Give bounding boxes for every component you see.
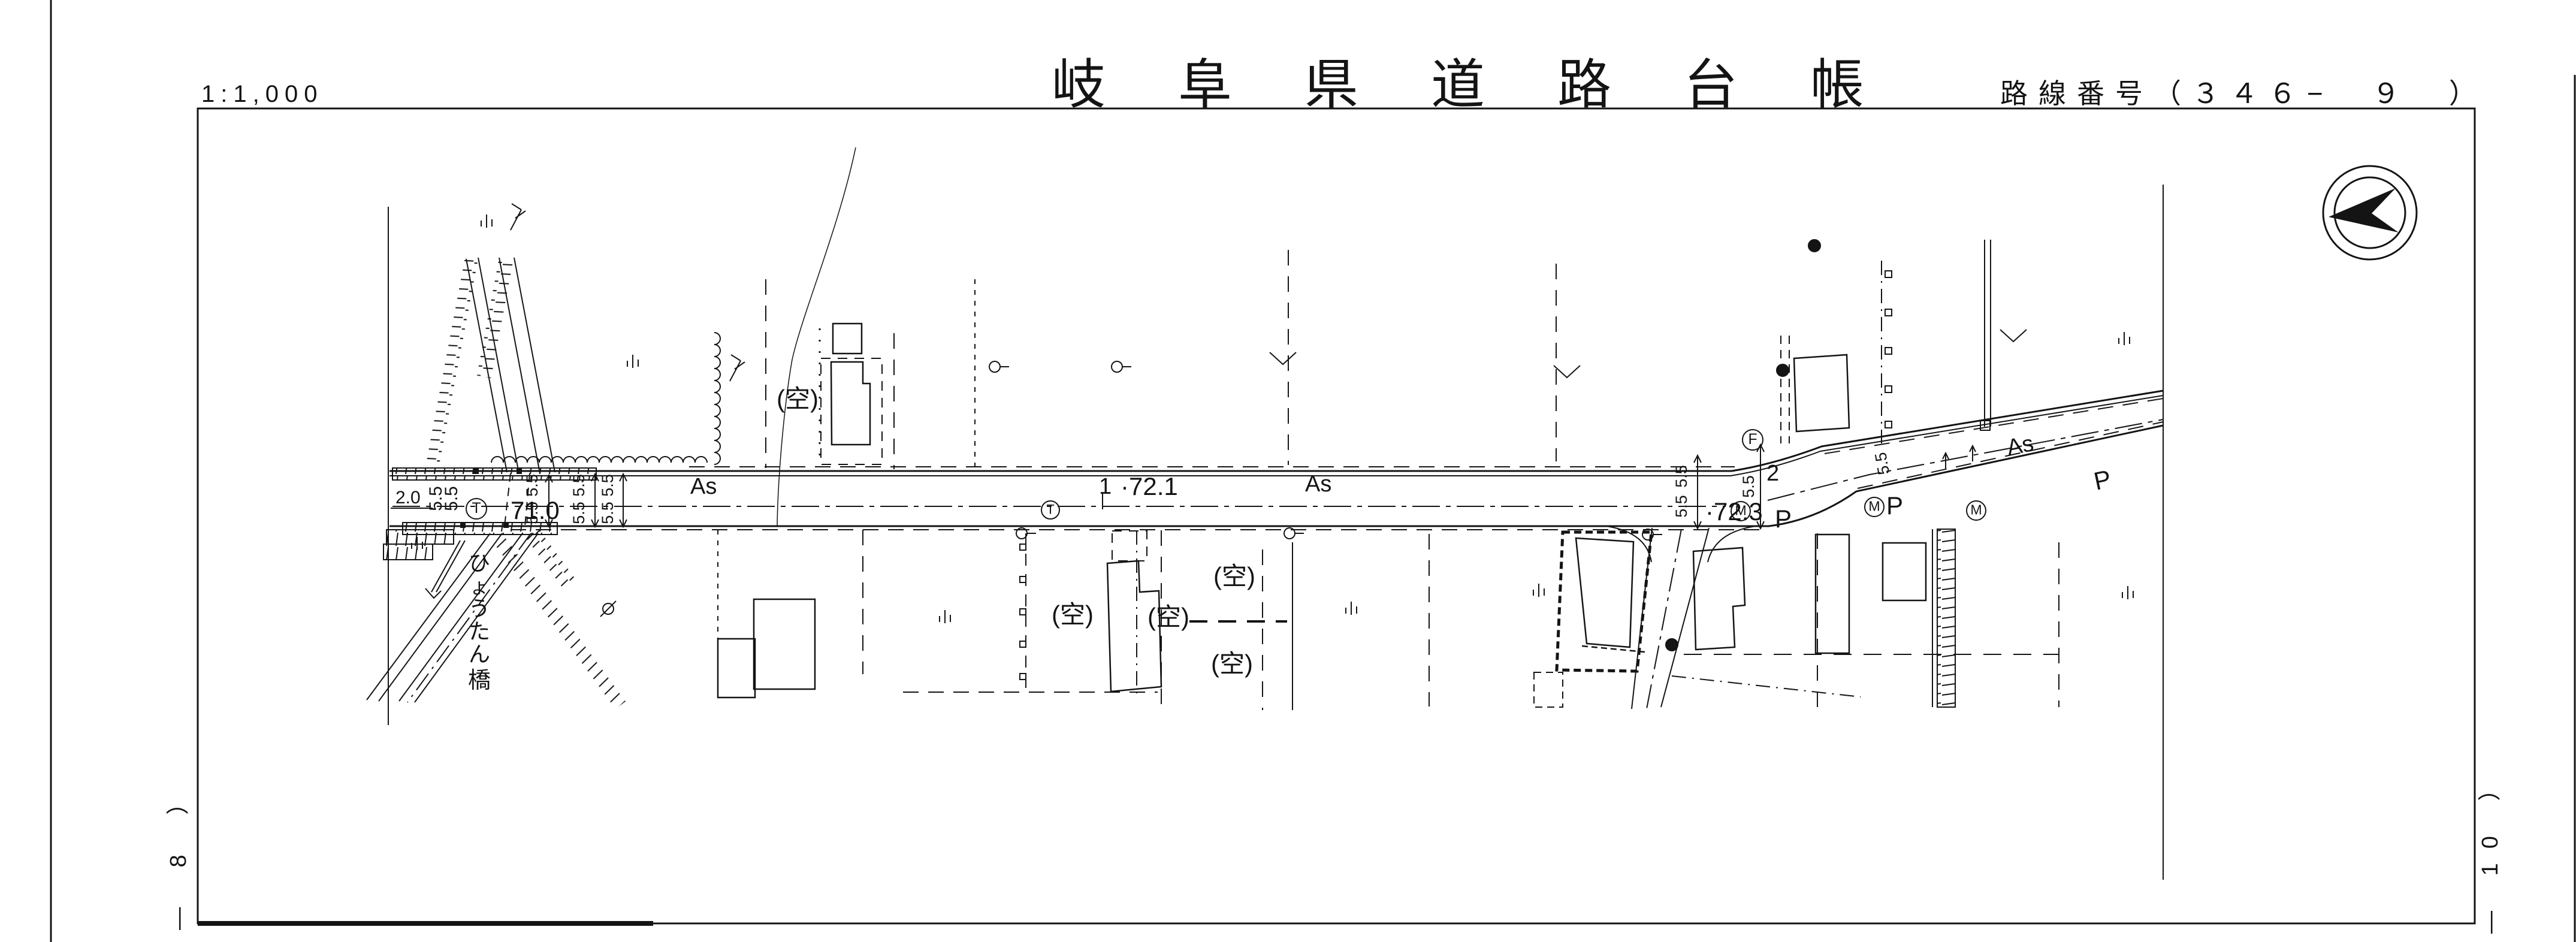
- width-5-5: 5.5: [442, 486, 461, 511]
- bridge-name-char: 橋: [468, 668, 491, 693]
- sheet-title: 岐 阜 県 道 路 台 帳: [1052, 55, 1893, 115]
- width-arrow: [591, 474, 599, 527]
- grass-mark: [1346, 602, 1357, 615]
- utility-pole-filled: [1777, 364, 1789, 376]
- grass-mark: [2119, 332, 2130, 345]
- tree-mark: [730, 355, 745, 381]
- parking-p-3: P: [2091, 464, 2113, 496]
- grass-mark: [481, 215, 492, 228]
- vacant-lot: (空): [777, 385, 819, 413]
- bridge-name-char: ょ: [470, 576, 489, 597]
- surface-as-northeast: As: [2005, 431, 2036, 461]
- vacant-lot: (空): [1211, 650, 1253, 678]
- utility-pole-filled: [1808, 240, 1820, 252]
- utility-pole: [1112, 361, 1131, 372]
- parcel-lines: [718, 147, 2059, 713]
- dim-levee-width: 2.0: [395, 488, 421, 508]
- field-mark: [2000, 330, 2027, 342]
- width-5-5: 5.5: [1672, 465, 1690, 488]
- small-arrow: [1970, 446, 1976, 461]
- vacant-lot: (空): [1052, 600, 1094, 629]
- surface-as-west: As: [690, 474, 717, 499]
- branch-route-2: 2: [1766, 461, 1779, 486]
- utility-pole: [989, 361, 1009, 372]
- bridge-name-char: ひ: [469, 551, 490, 575]
- utility-t-mark-letter: T: [1046, 502, 1054, 517]
- manhole-m-mark-letter: M: [1970, 502, 1982, 518]
- utility-f-mark-letter: F: [1748, 431, 1757, 448]
- symbols-layer: [412, 204, 2133, 651]
- dim-section-72-3: ·72.3: [1705, 497, 1763, 526]
- tree-mark: [511, 204, 526, 230]
- manhole-m-mark-letter: M: [1868, 499, 1880, 514]
- width-5-5: 5.5: [599, 502, 617, 524]
- parking-p-1: P: [1775, 505, 1792, 533]
- main-road: [383, 391, 2163, 560]
- map-scale: 1:1,000: [201, 81, 323, 107]
- width-5-5: 5.5: [1871, 451, 1893, 476]
- utility-pole-filled: [1666, 639, 1678, 651]
- grass-mark: [1533, 584, 1544, 597]
- map-canvas: 1:1,000 岐 阜 県 道 路 台 帳 路線番号（３４６− ９ ） ― 8 …: [0, 0, 2576, 942]
- labels-layer: 2.071.01·72.1AsAsAs·72.32PPP5.55.55.55.5…: [395, 385, 2113, 693]
- tree-circle-mark: [600, 601, 616, 617]
- margin-label-left: ― 8 ）: [166, 775, 191, 930]
- vacant-lot: (空): [1213, 562, 1255, 590]
- width-5-5: 5.5: [523, 474, 541, 497]
- surface-as-mid: As: [1305, 472, 1331, 497]
- route-number: 路線番号（３４６− ９ ）: [2000, 78, 2487, 109]
- bridge-name-char: う: [469, 596, 490, 621]
- width-5-5: 5.5: [523, 502, 541, 524]
- fenced-compound: [1557, 532, 1651, 671]
- road-register-sheet: 1:1,000 岐 阜 県 道 路 台 帳 路線番号（３４６− ９ ） ― 8 …: [0, 0, 2576, 942]
- field-mark: [1270, 352, 1296, 364]
- grass-mark: [627, 355, 638, 368]
- dim-section-72-1: ·72.1: [1121, 472, 1178, 500]
- parking-p-2: P: [1886, 491, 1903, 520]
- vacant-lot: (空): [1147, 603, 1189, 631]
- margin-label-right: ― 10 ）: [2478, 764, 2503, 934]
- field-mark: [1554, 366, 1580, 378]
- width-arrow: [620, 474, 627, 527]
- bridge-name-char: た: [469, 619, 490, 644]
- width-5-5: 5.5: [599, 474, 617, 497]
- utility-t-mark-letter: T: [472, 500, 481, 517]
- width-5-5: 5.5: [570, 474, 588, 497]
- station-no-1: 1: [1099, 474, 1112, 499]
- bridge-name-char: ん: [469, 642, 490, 666]
- width-5-5: 5.5: [1740, 475, 1757, 498]
- width-5-5: 5.5: [570, 502, 588, 524]
- grass-mark: [940, 610, 950, 623]
- grass-mark: [2122, 586, 2133, 599]
- width-5-5: 5.5: [1672, 495, 1690, 518]
- north-arrow-icon: [2323, 166, 2417, 259]
- manhole-m-mark-letter: M: [1735, 503, 1746, 518]
